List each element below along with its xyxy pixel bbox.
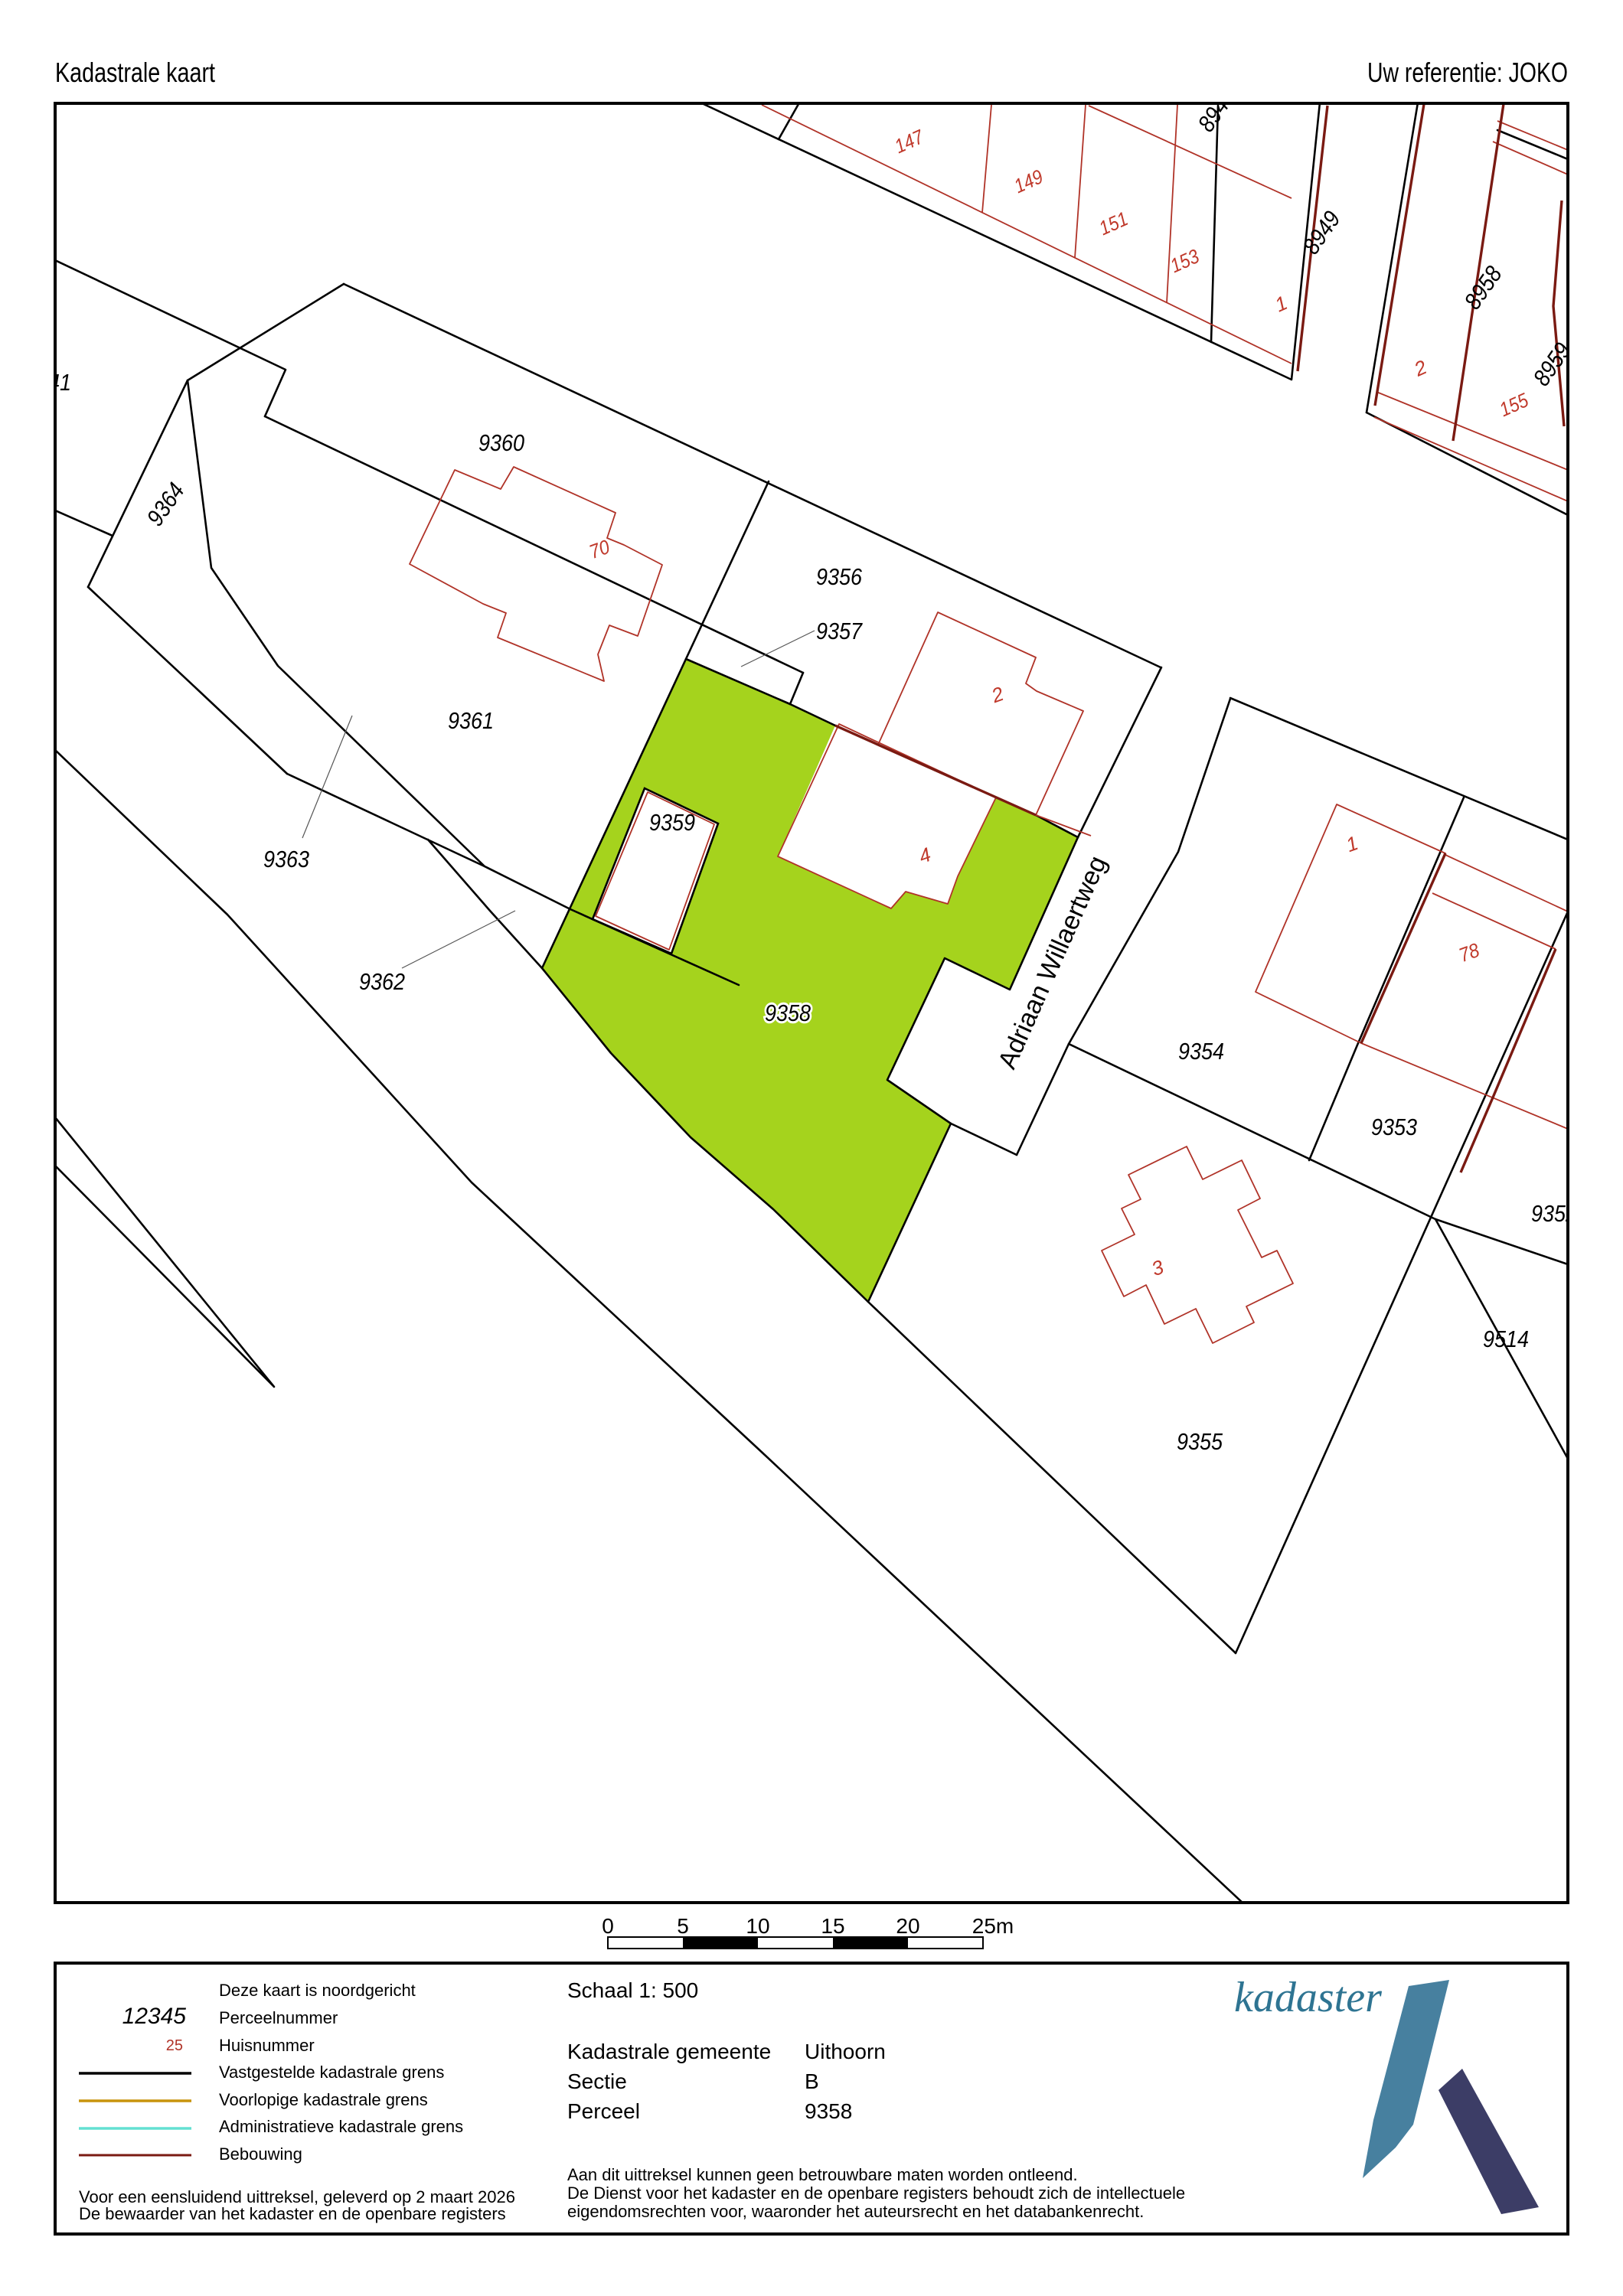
svg-text:eigendomsrechten voor, waarond: eigendomsrechten voor, waaronder het aut… [567,2202,1144,2221]
svg-text:9359: 9359 [649,809,695,836]
svg-text:Voorlopige kadastrale grens: Voorlopige kadastrale grens [219,2090,428,2109]
svg-text:8958: 8958 [1459,261,1507,315]
svg-text:Sectie: Sectie [567,2069,627,2093]
svg-text:10: 10 [746,1914,769,1938]
svg-text:9360: 9360 [478,429,524,456]
svg-text:9357: 9357 [816,618,864,644]
svg-text:20: 20 [896,1914,919,1938]
svg-text:Uithoorn: Uithoorn [805,2040,886,2063]
svg-text:9358: 9358 [765,1000,811,1026]
svg-text:155: 155 [1496,388,1532,421]
svg-text:15: 15 [821,1914,844,1938]
svg-text:De bewaarder van het kadaster: De bewaarder van het kadaster en de open… [79,2204,506,2223]
svg-text:9353: 9353 [1371,1114,1417,1140]
svg-text:151: 151 [1096,207,1132,240]
svg-text:2: 2 [1410,355,1431,381]
svg-text:kadaster: kadaster [1234,1974,1382,2021]
svg-text:B: B [805,2069,819,2093]
svg-text:1: 1 [1272,291,1291,316]
svg-text:Uw referentie: JOKO: Uw referentie: JOKO [1367,57,1568,88]
svg-text:Perceelnummer: Perceelnummer [219,2008,338,2027]
svg-text:4: 4 [916,843,934,868]
svg-text:25m: 25m [972,1914,1014,1938]
svg-text:78: 78 [1456,938,1483,967]
svg-text:9364: 9364 [142,478,190,530]
svg-text:0: 0 [602,1914,614,1938]
svg-text:9355: 9355 [1177,1428,1223,1455]
svg-text:3: 3 [1148,1255,1167,1280]
svg-text:Kadastrale gemeente: Kadastrale gemeente [567,2040,771,2063]
svg-text:Kadastrale kaart: Kadastrale kaart [55,57,215,88]
svg-text:1: 1 [1343,831,1361,856]
svg-text:9514: 9514 [1483,1326,1529,1352]
svg-text:9358: 9358 [805,2099,852,2123]
svg-text:149: 149 [1011,165,1047,197]
svg-text:Huisnummer: Huisnummer [219,2036,315,2055]
svg-text:9361: 9361 [448,707,494,734]
svg-text:De Dienst voor het kadaster en: De Dienst voor het kadaster en de openba… [567,2183,1185,2203]
svg-text:Deze kaart is noordgericht: Deze kaart is noordgericht [219,1981,416,2000]
svg-text:5: 5 [677,1914,689,1938]
svg-text:9356: 9356 [816,563,863,590]
svg-text:2: 2 [988,682,1007,708]
svg-text:9354: 9354 [1178,1038,1224,1065]
svg-text:25: 25 [166,2037,183,2054]
svg-text:9362: 9362 [359,968,405,995]
svg-text:Schaal 1: 500: Schaal 1: 500 [567,1978,698,2002]
svg-text:8948: 8948 [1193,83,1241,137]
svg-text:12345: 12345 [122,2004,187,2029]
svg-text:Perceel: Perceel [567,2099,640,2123]
svg-text:Bebouwing: Bebouwing [219,2144,302,2164]
svg-text:Vastgestelde kadastrale grens: Vastgestelde kadastrale grens [219,2063,444,2082]
svg-text:153: 153 [1167,244,1203,277]
svg-text:9352: 9352 [1531,1200,1577,1227]
svg-text:147: 147 [891,125,928,158]
svg-text:Aan dit uittreksel kunnen geen: Aan dit uittreksel kunnen geen betrouwba… [567,2165,1078,2184]
svg-text:9363: 9363 [263,846,309,872]
svg-text:Administratieve kadastrale gre: Administratieve kadastrale grens [219,2117,463,2136]
